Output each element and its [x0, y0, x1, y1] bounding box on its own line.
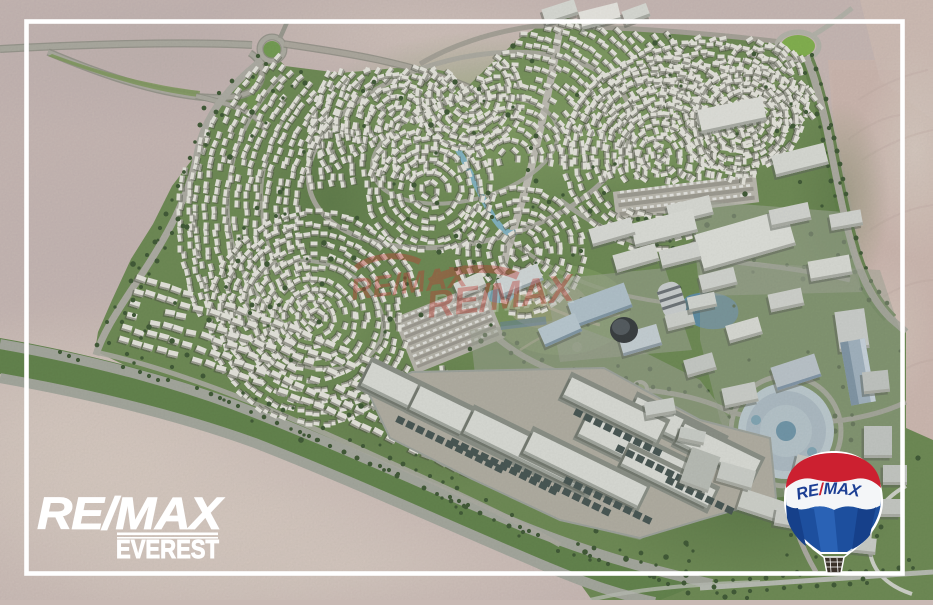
svg-text:EVEREST: EVEREST [116, 534, 219, 564]
svg-text:RE/MAX: RE/MAX [37, 488, 225, 539]
